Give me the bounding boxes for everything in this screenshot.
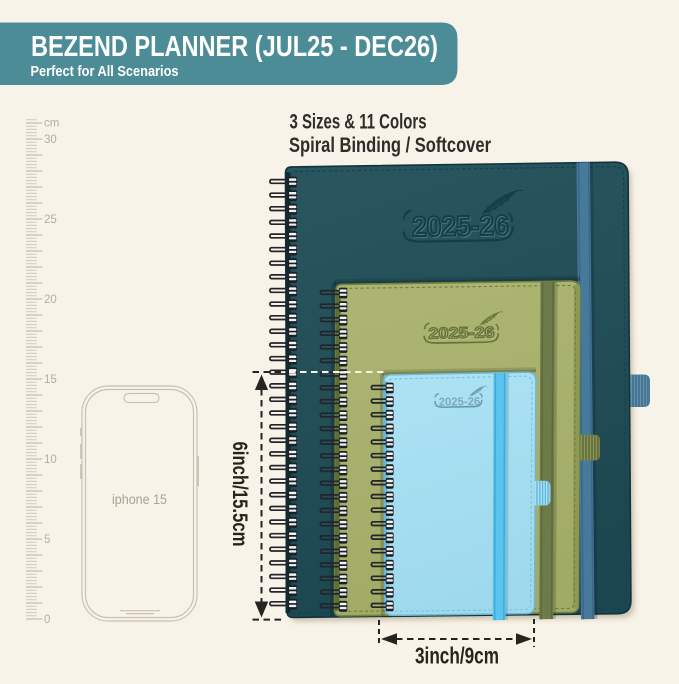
svg-text:3 Sizes & 11 Colors: 3 Sizes & 11 Colors	[290, 111, 427, 134]
svg-text:5: 5	[44, 534, 50, 546]
svg-text:6inch/15.5cm: 6inch/15.5cm	[228, 442, 251, 547]
svg-text:0: 0	[44, 614, 50, 626]
svg-text:15: 15	[44, 374, 57, 386]
svg-text:2025-26: 2025-26	[428, 324, 495, 342]
svg-text:2025-26: 2025-26	[412, 210, 510, 243]
svg-text:Perfect for All Scenarios: Perfect for All Scenarios	[31, 63, 179, 80]
svg-text:BEZEND PLANNER (JUL25 - DEC26): BEZEND PLANNER (JUL25 - DEC26)	[31, 31, 438, 63]
svg-text:Spiral Binding / Softcover: Spiral Binding / Softcover	[289, 134, 491, 157]
svg-text:10: 10	[44, 454, 57, 466]
svg-text:25: 25	[44, 214, 57, 226]
svg-text:iphone 15: iphone 15	[112, 492, 167, 507]
svg-text:30: 30	[44, 134, 57, 146]
svg-text:3inch/9cm: 3inch/9cm	[415, 643, 499, 669]
svg-text:20: 20	[44, 294, 57, 306]
svg-text:cm: cm	[44, 118, 59, 130]
